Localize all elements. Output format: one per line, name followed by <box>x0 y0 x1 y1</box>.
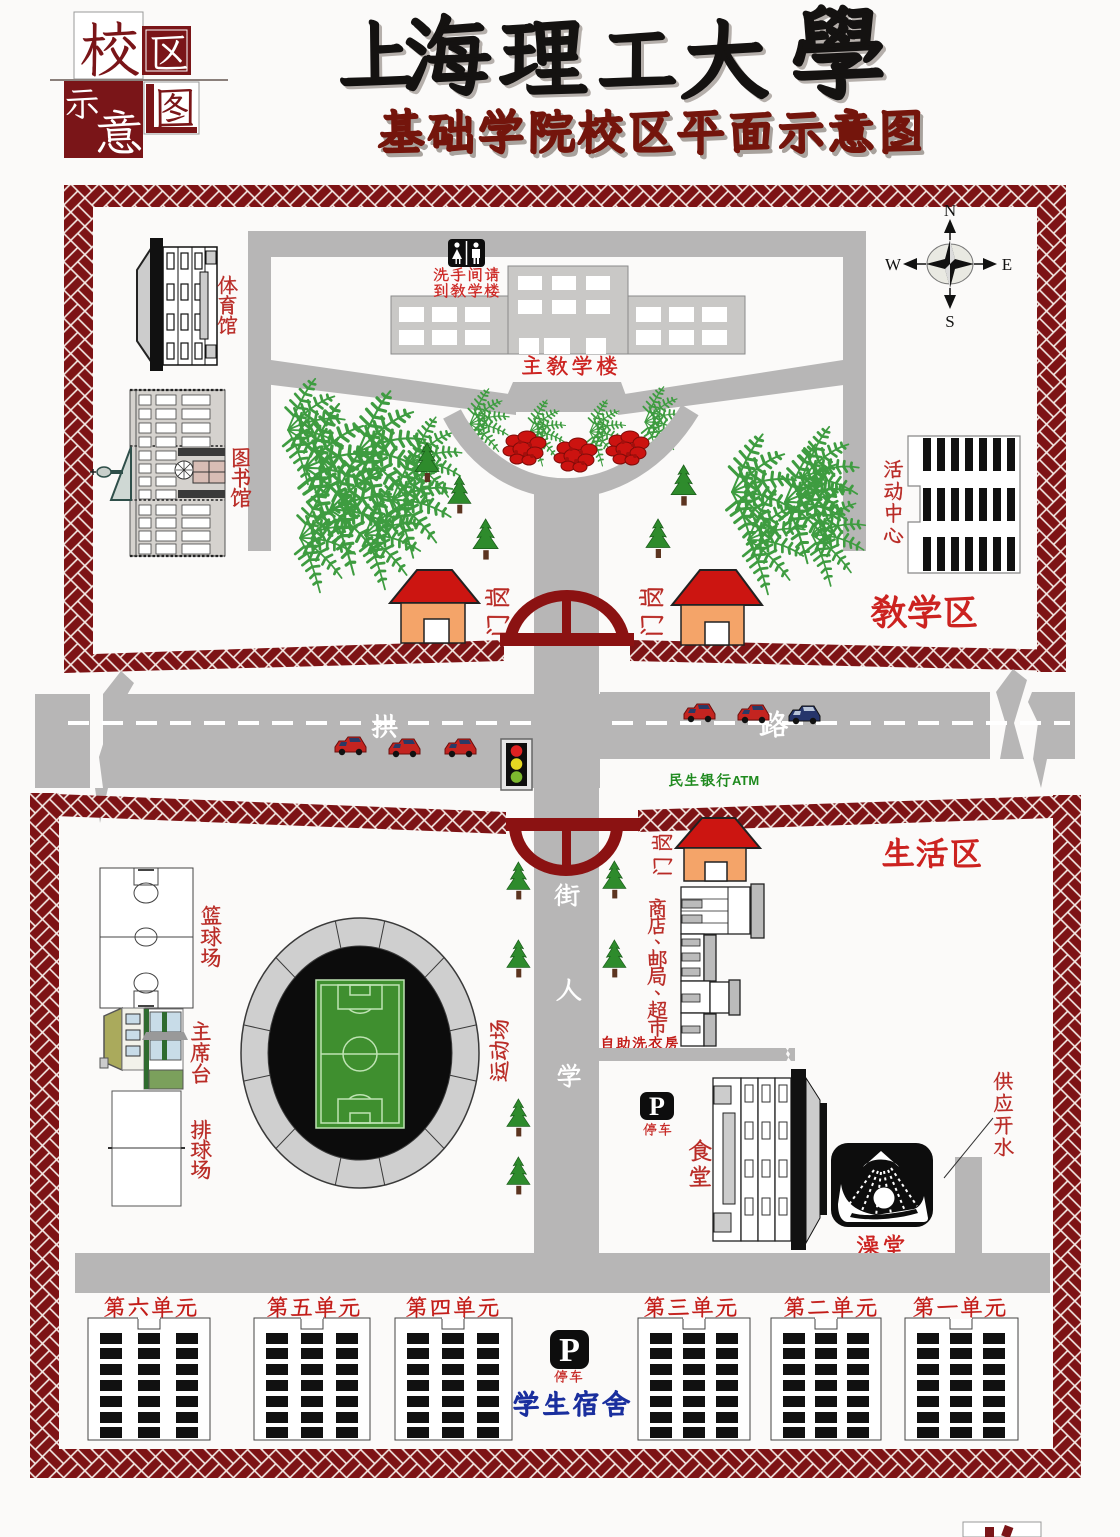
svg-text:W: W <box>885 255 902 274</box>
svg-text:P: P <box>649 1092 665 1121</box>
svg-text:N: N <box>944 201 956 220</box>
svg-text:S: S <box>945 312 954 331</box>
svg-text:E: E <box>1002 255 1012 274</box>
svg-text:P: P <box>559 1332 580 1369</box>
svg-text:ATM: ATM <box>732 773 759 788</box>
